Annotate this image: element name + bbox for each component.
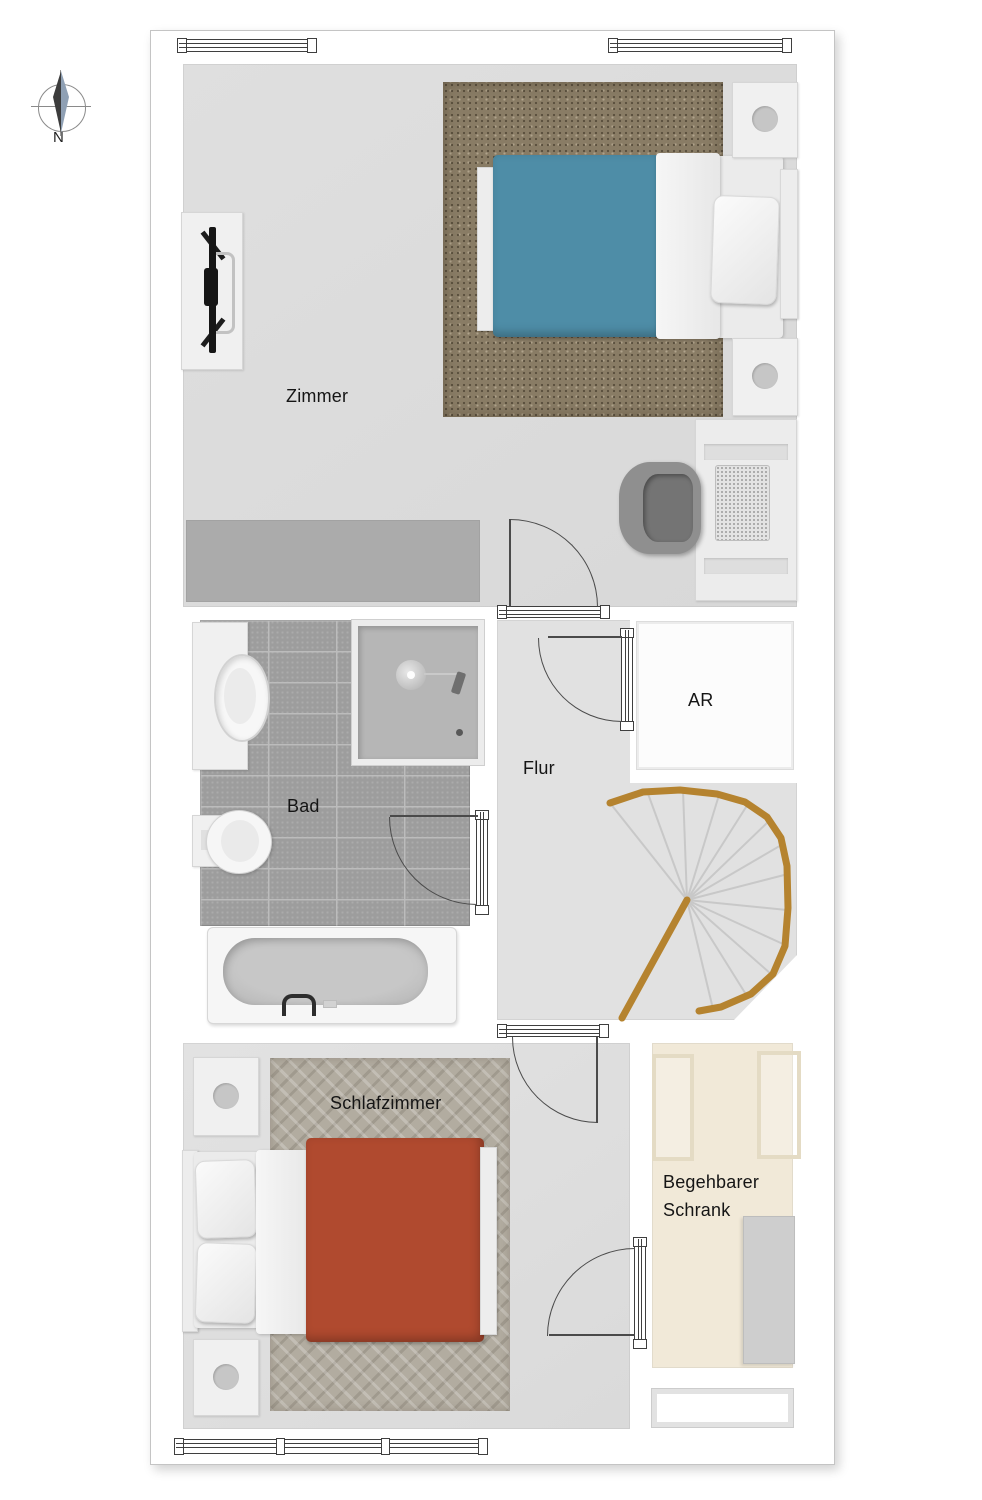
shower-head-icon xyxy=(396,660,426,690)
sink-bowl xyxy=(224,668,256,724)
window-divider xyxy=(276,1438,285,1455)
wardrobe-unit xyxy=(652,1054,694,1161)
door-frame xyxy=(634,1238,646,1348)
bed-blanket-red xyxy=(306,1138,484,1342)
tv-bracket-icon xyxy=(216,252,235,334)
room-label-schrank: Begehbarer Schrank xyxy=(663,1168,759,1224)
shower-drain xyxy=(456,729,463,736)
lamp-icon xyxy=(213,1083,239,1109)
stair-railing-inner xyxy=(622,900,687,1018)
window-schlafzimmer-bottom xyxy=(175,1439,487,1454)
desk-crossbar xyxy=(704,444,788,460)
bathtub-faucet-icon xyxy=(282,994,316,1016)
desk-crossbar xyxy=(704,558,788,574)
room-label-schlafzimmer: Schlafzimmer xyxy=(330,1093,441,1114)
nightstand xyxy=(732,82,798,158)
stair-treads xyxy=(610,790,788,1009)
bed-sheet-fold xyxy=(656,153,720,339)
door-frame xyxy=(498,1025,608,1037)
room-label-bad: Bad xyxy=(287,796,320,817)
bed-pillow xyxy=(710,195,780,305)
bed-foot-bar xyxy=(480,1147,497,1335)
sink-basin xyxy=(214,654,270,742)
room-ar-floor xyxy=(637,622,793,769)
window-zimmer-right xyxy=(609,39,791,52)
door-frame-lines xyxy=(635,1239,645,1347)
compass-north-label: N xyxy=(53,129,64,146)
window-zimmer-left xyxy=(178,39,316,52)
window-glass-lines xyxy=(610,40,790,51)
room-label-schrank-line2: Schrank xyxy=(663,1196,759,1224)
lamp-icon xyxy=(752,106,778,132)
chair-seat xyxy=(643,474,693,542)
bed-headboard xyxy=(780,169,798,319)
room-label-zimmer: Zimmer xyxy=(286,386,348,407)
door-frame xyxy=(476,811,488,914)
floorplan-canvas: N Zimmer xyxy=(0,0,982,1500)
dresser xyxy=(186,520,480,602)
spiral-staircase xyxy=(595,778,805,1023)
bathtub xyxy=(207,927,457,1024)
bed-pillow xyxy=(195,1242,258,1324)
bed-blanket-blue xyxy=(493,155,665,337)
door-frame-lines xyxy=(499,607,608,617)
door-frame-lines xyxy=(622,630,632,729)
desk xyxy=(695,419,797,601)
nightstand xyxy=(193,1057,259,1136)
nightstand xyxy=(193,1339,259,1416)
office-chair xyxy=(619,462,701,554)
bed-pillow xyxy=(195,1159,258,1239)
toilet-bowl xyxy=(206,810,272,874)
room-label-flur: Flur xyxy=(523,758,555,779)
tv-mount-icon xyxy=(204,268,218,306)
window-divider xyxy=(381,1438,390,1455)
lamp-icon xyxy=(213,1364,239,1390)
lamp-icon xyxy=(752,363,778,389)
closet-dresser xyxy=(743,1216,795,1364)
door-frame-lines xyxy=(477,812,487,913)
room-label-schrank-line1: Begehbarer xyxy=(663,1168,759,1196)
door-frame xyxy=(621,629,633,730)
bathtub-drain xyxy=(323,1000,337,1008)
shelf-unit xyxy=(652,1389,793,1427)
nightstand xyxy=(732,338,798,416)
bathtub-basin xyxy=(223,938,428,1005)
door-frame-lines xyxy=(499,1026,607,1036)
window-glass-lines xyxy=(176,1440,486,1453)
bed-sheet-fold xyxy=(256,1150,312,1334)
shower xyxy=(352,620,484,765)
window-glass-lines xyxy=(179,40,315,51)
laptop-icon xyxy=(715,465,770,541)
wardrobe-unit xyxy=(757,1051,801,1159)
door-frame xyxy=(498,606,609,618)
room-label-ar: AR xyxy=(688,690,713,711)
